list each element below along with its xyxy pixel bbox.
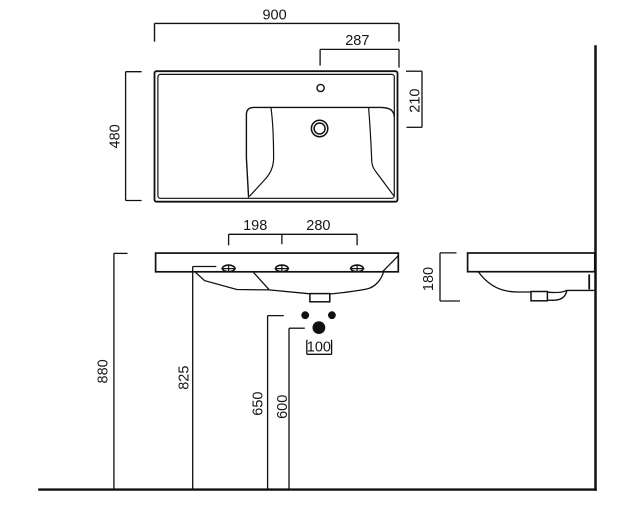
svg-text:180: 180 [421,267,437,291]
svg-text:880: 880 [96,359,112,383]
svg-text:480: 480 [108,124,124,148]
svg-text:900: 900 [262,8,286,24]
svg-text:100: 100 [307,339,331,355]
svg-text:210: 210 [407,88,423,112]
svg-text:825: 825 [177,366,193,390]
svg-text:198: 198 [243,218,267,234]
svg-text:600: 600 [275,395,291,419]
svg-text:280: 280 [306,218,330,234]
svg-text:287: 287 [345,33,369,49]
svg-text:650: 650 [251,391,267,415]
